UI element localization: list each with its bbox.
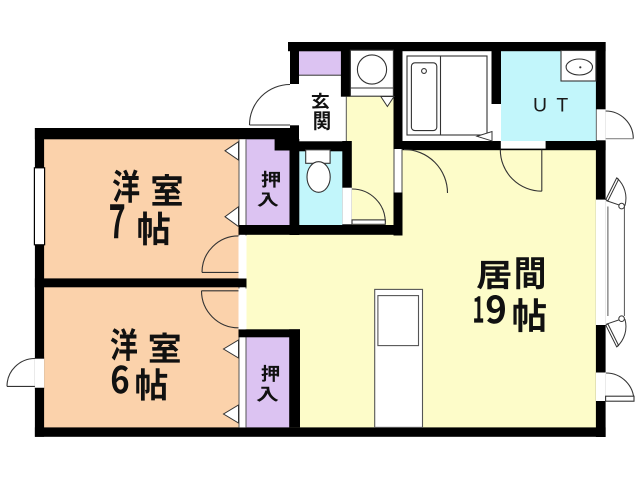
svg-text:T: T (556, 94, 568, 116)
svg-text:U: U (533, 94, 547, 116)
